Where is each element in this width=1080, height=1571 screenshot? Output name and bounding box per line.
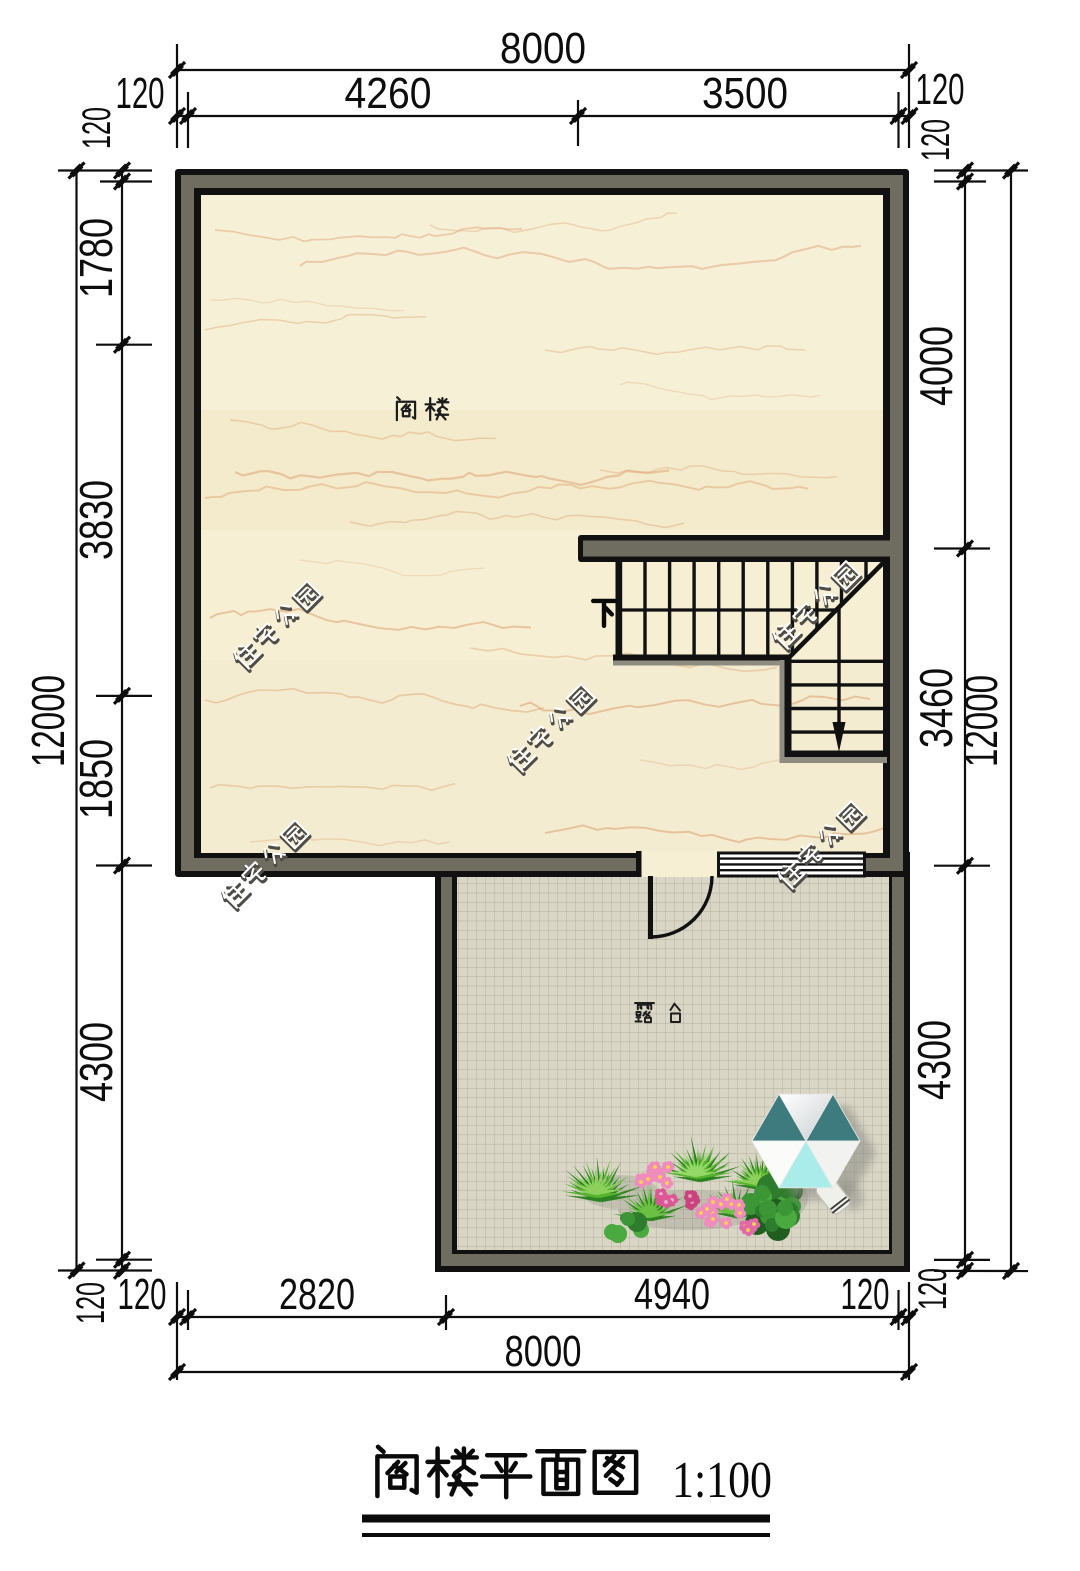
svg-text:1850: 1850 [70, 739, 122, 819]
svg-text:120: 120 [118, 1270, 167, 1319]
svg-text:12000: 12000 [955, 675, 1007, 767]
svg-text:3500: 3500 [702, 69, 788, 118]
svg-text:4940: 4940 [634, 1270, 710, 1319]
svg-text:120: 120 [841, 1270, 890, 1319]
svg-text:120: 120 [911, 1268, 955, 1310]
svg-text:4260: 4260 [345, 69, 432, 118]
svg-text:8000: 8000 [505, 1327, 582, 1376]
svg-text:1:100: 1:100 [672, 1452, 772, 1509]
svg-text:2820: 2820 [279, 1270, 355, 1319]
svg-text:120: 120 [916, 65, 965, 114]
svg-text:1780: 1780 [70, 218, 122, 298]
svg-text:4300: 4300 [70, 1022, 122, 1102]
svg-text:120: 120 [69, 1282, 113, 1324]
svg-text:12000: 12000 [22, 675, 74, 767]
svg-text:120: 120 [116, 69, 165, 118]
svg-text:4000: 4000 [910, 326, 962, 406]
svg-text:8000: 8000 [500, 24, 586, 73]
svg-text:120: 120 [75, 107, 119, 149]
svg-text:3830: 3830 [70, 480, 122, 560]
svg-text:120: 120 [914, 119, 958, 161]
svg-text:4300: 4300 [908, 1020, 960, 1100]
